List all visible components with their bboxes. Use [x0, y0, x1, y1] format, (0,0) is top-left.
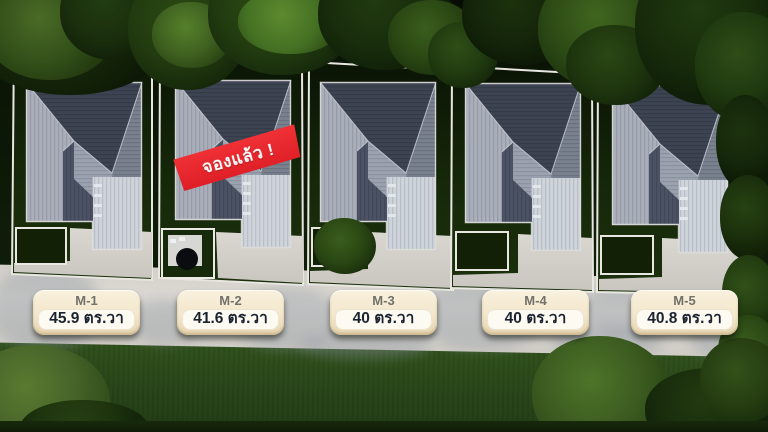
bottom-foliage-strip [0, 421, 768, 432]
plot-badge-m-3[interactable]: M-3 40 ตร.วา [330, 290, 437, 335]
tree-canopy [720, 175, 768, 260]
tree-canopy [314, 218, 376, 274]
aerial-siteplan-image: จองแล้ว ! M-1 45.9 ตร.วา M-2 41.6 ตร.วา … [0, 0, 768, 432]
plot-area: 40.8 ตร.วา [636, 309, 733, 330]
plot-name: M-3 [330, 292, 437, 309]
plot-area: 40 ตร.วา [335, 309, 432, 330]
plot-badge-m-2[interactable]: M-2 41.6 ตร.วา [177, 290, 284, 335]
plot-name: M-5 [631, 292, 738, 309]
plot-area: 45.9 ตร.วา [38, 309, 135, 330]
plot-area: 41.6 ตร.วา [182, 309, 279, 330]
garden-square [456, 232, 508, 270]
garden-square [601, 236, 653, 274]
plot-badge-m-1[interactable]: M-1 45.9 ตร.วา [33, 290, 140, 335]
patio-square [162, 229, 214, 278]
plot-name: M-1 [33, 292, 140, 309]
plot-name: M-2 [177, 292, 284, 309]
plot-name: M-4 [482, 292, 589, 309]
plot-m-4[interactable] [451, 66, 593, 292]
plot-area: 40 ตร.วา [487, 309, 584, 330]
plot-badge-m-4[interactable]: M-4 40 ตร.วา [482, 290, 589, 335]
plot-badge-m-5[interactable]: M-5 40.8 ตร.วา [631, 290, 738, 335]
garden-square [16, 228, 66, 264]
